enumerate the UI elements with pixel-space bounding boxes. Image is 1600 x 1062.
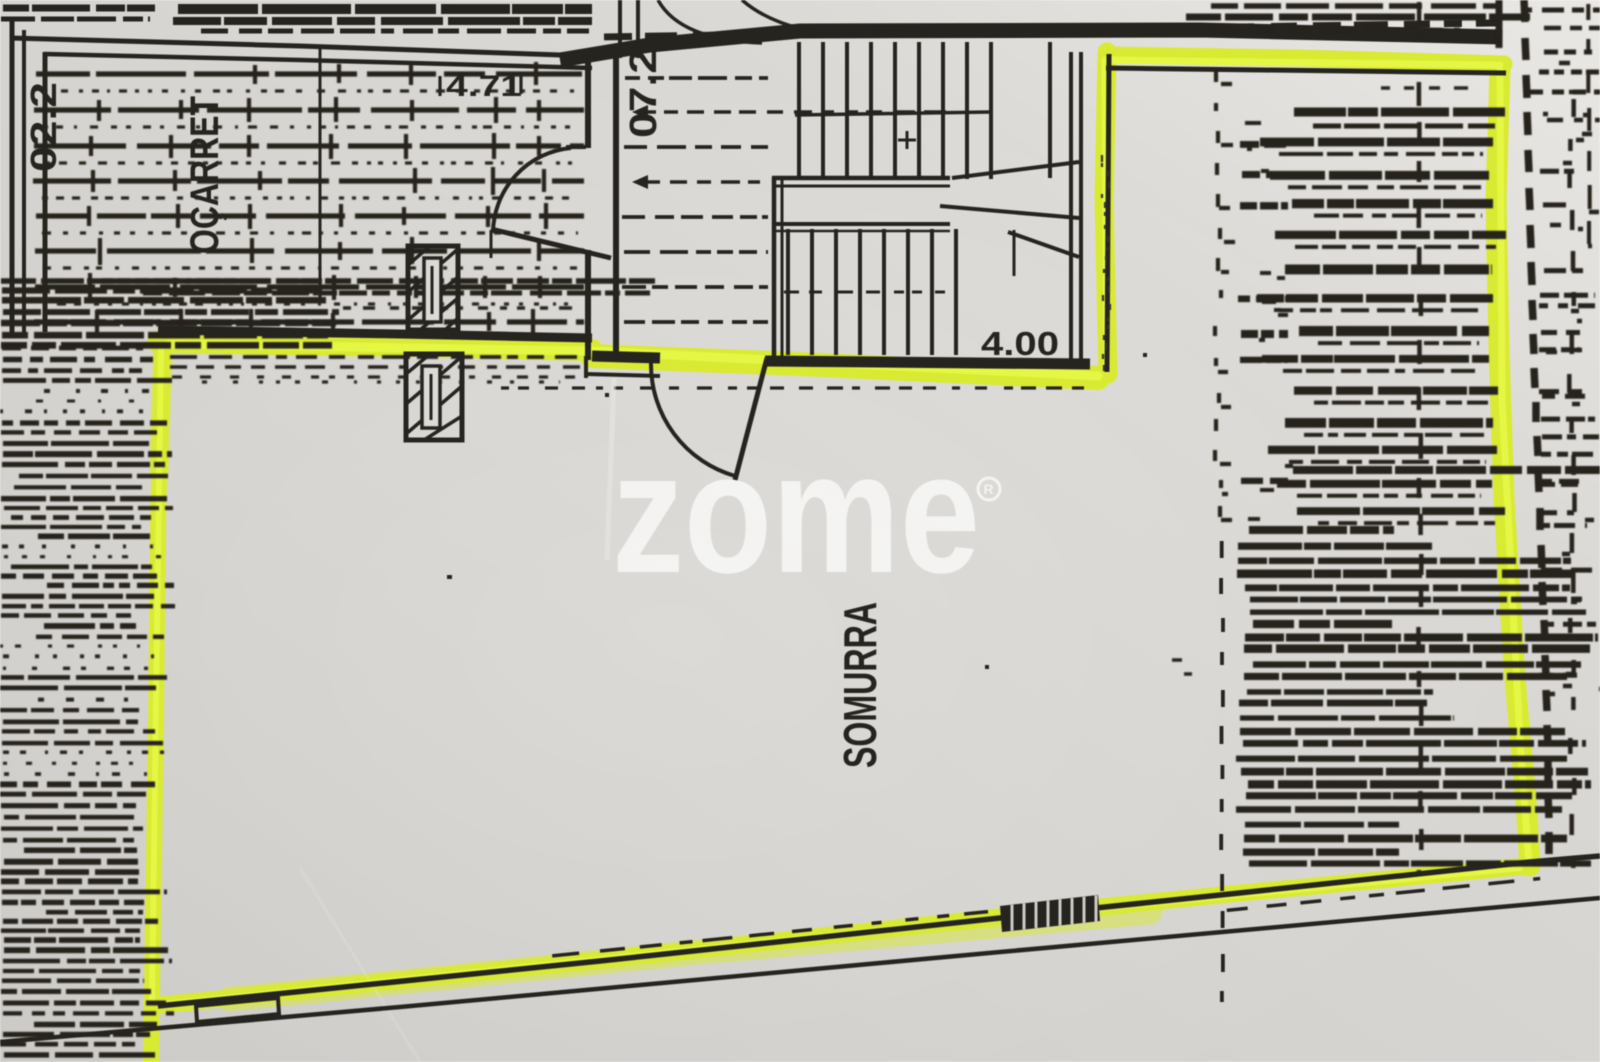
svg-text:zome: zome <box>612 417 980 609</box>
svg-text:SOMURRA: SOMURRA <box>834 602 886 768</box>
svg-text:OÇARRET: OÇARRET <box>183 96 227 254</box>
svg-text:02.2: 02.2 <box>23 82 64 172</box>
svg-text:07.2: 07.2 <box>623 48 665 138</box>
svg-text:4.00: 4.00 <box>981 325 1059 362</box>
svg-text:R: R <box>984 481 994 497</box>
svg-text:4.71: 4.71 <box>446 70 522 103</box>
